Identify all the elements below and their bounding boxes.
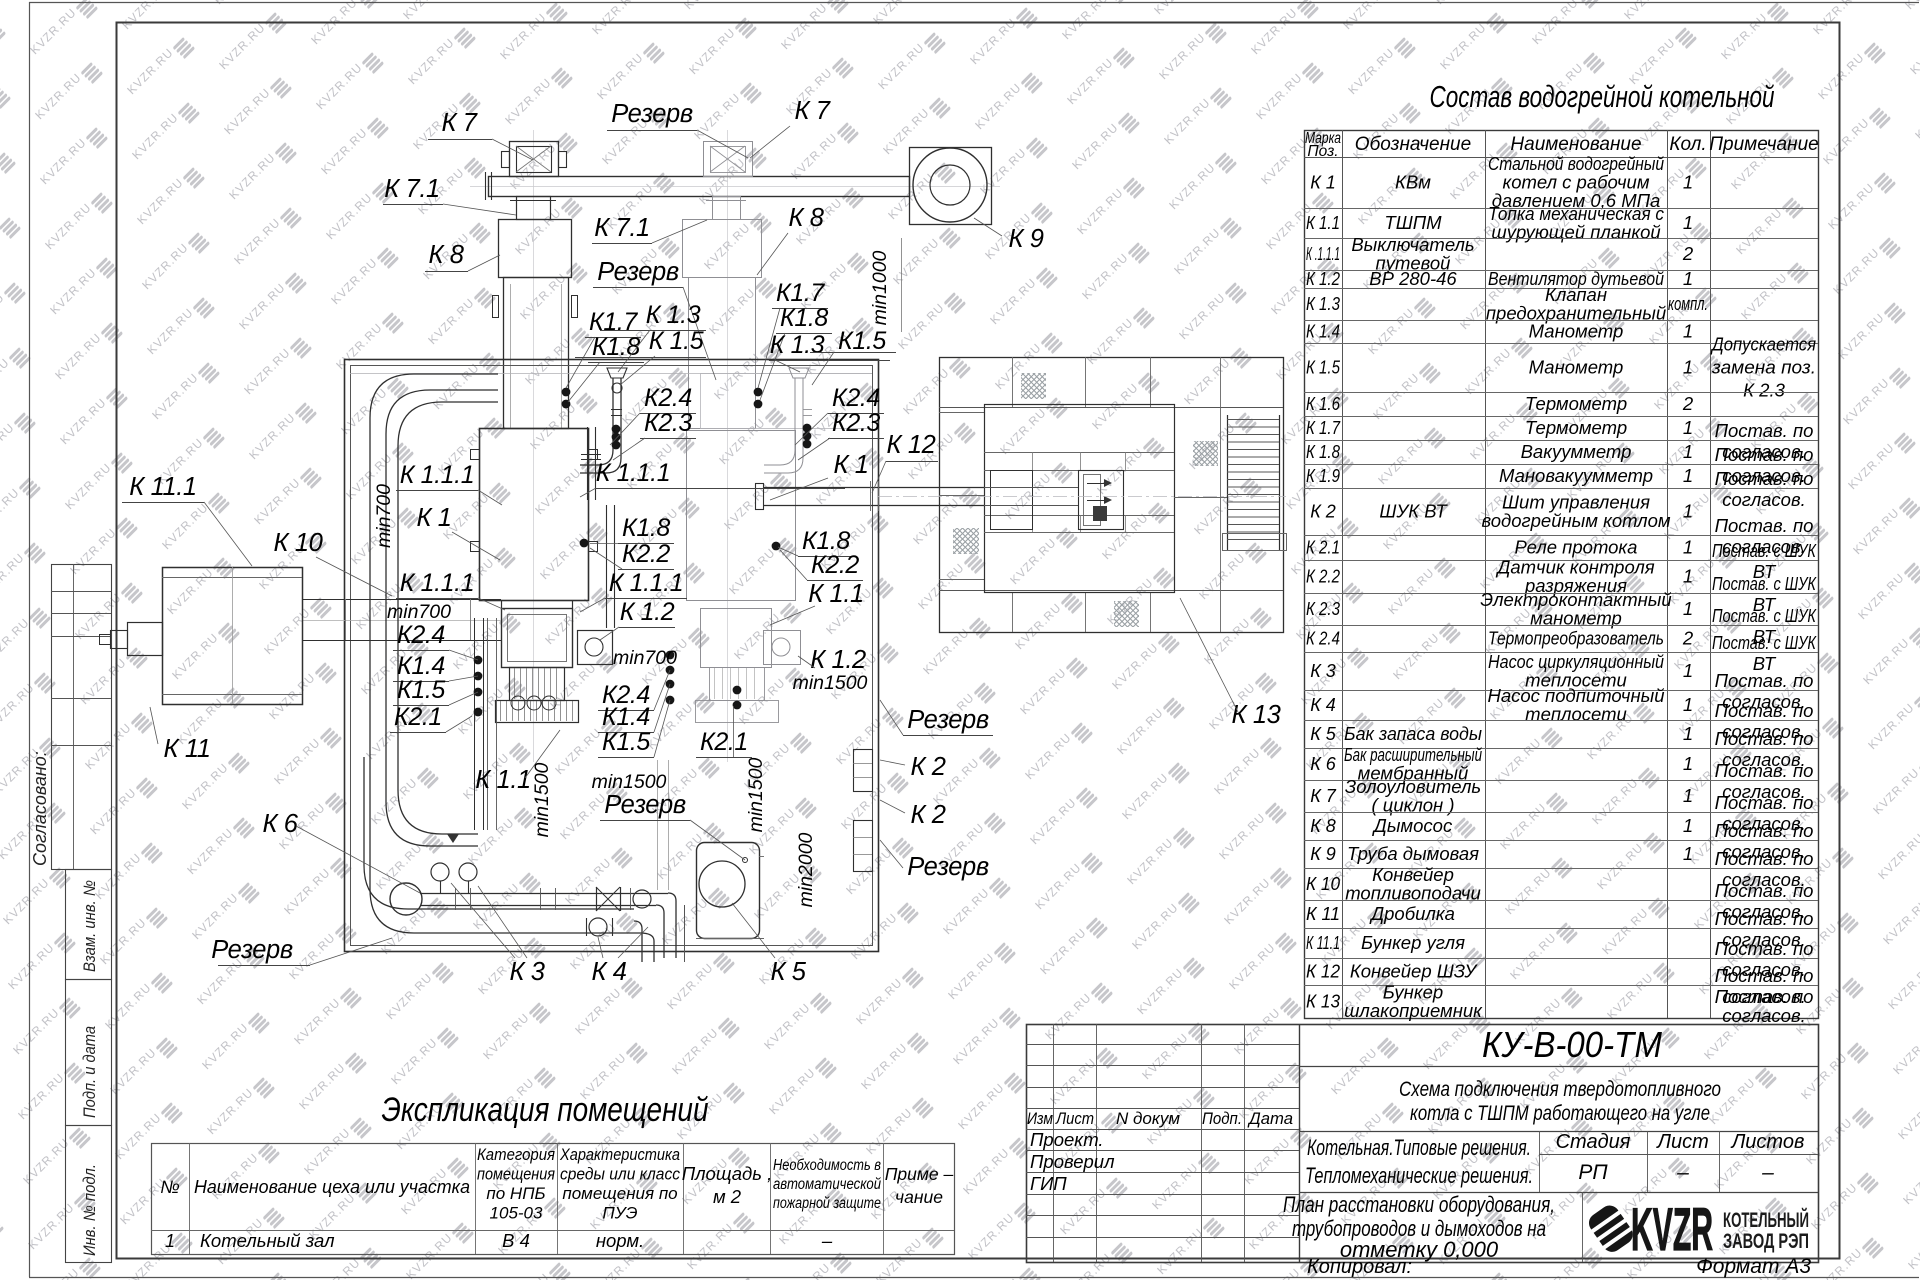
svg-text:Изм: Изм <box>1027 1110 1053 1128</box>
svg-text:Дробилка: Дробилка <box>1369 903 1455 924</box>
svg-text:пожарной защите: пожарной защите <box>773 1195 881 1212</box>
svg-text:К 9: К 9 <box>1008 225 1043 253</box>
svg-text:min1000: min1000 <box>869 250 891 325</box>
svg-text:К 1.2: К 1.2 <box>810 646 866 674</box>
svg-text:Постав. по: Постав. по <box>1715 728 1814 749</box>
svg-text:К 7: К 7 <box>441 109 477 137</box>
svg-text:К 9: К 9 <box>1310 844 1336 864</box>
svg-text:К 1.3: К 1.3 <box>770 331 825 359</box>
svg-text:№: № <box>160 1177 180 1197</box>
svg-text:Вакуумметр: Вакуумметр <box>1521 441 1632 462</box>
svg-text:Состав водогрейной котельной: Состав водогрейной котельной <box>1430 79 1775 114</box>
svg-text:Постав. по: Постав. по <box>1715 515 1814 536</box>
svg-text:Бункер угля: Бункер угля <box>1361 932 1465 953</box>
svg-text:Проект.: Проект. <box>1030 1129 1104 1150</box>
svg-text:помещения: помещения <box>477 1165 555 1184</box>
svg-text:Постав. по: Постав. по <box>1715 760 1814 781</box>
svg-text:К 7: К 7 <box>794 97 830 125</box>
svg-text:К1.8: К1.8 <box>592 333 640 361</box>
svg-text:К 8: К 8 <box>428 241 464 269</box>
svg-text:К 2: К 2 <box>1310 502 1336 522</box>
svg-text:К 2.3: К 2.3 <box>1743 380 1785 401</box>
svg-text:–: – <box>1761 1161 1774 1184</box>
svg-text:1: 1 <box>1683 321 1693 342</box>
svg-text:КВм: КВм <box>1395 172 1431 193</box>
svg-text:Постав. с ШУК: Постав. с ШУК <box>1712 573 1817 594</box>
svg-text:К 1.1.1: К 1.1.1 <box>400 461 474 489</box>
svg-text:К2.4: К2.4 <box>644 384 692 412</box>
svg-text:Постав. по: Постав. по <box>1715 986 1814 1007</box>
svg-text:К 1.2: К 1.2 <box>620 598 675 626</box>
svg-text:Схема подключения твердотоплив: Схема подключения твердотопливного <box>1399 1077 1721 1101</box>
svg-text:Постав. по: Постав. по <box>1715 938 1814 959</box>
svg-text:Постав. по: Постав. по <box>1715 420 1814 441</box>
svg-text:Постав. по: Постав. по <box>1715 444 1814 465</box>
svg-text:–: – <box>821 1230 833 1251</box>
svg-text:min1500: min1500 <box>592 771 667 793</box>
svg-text:К 2.3: К 2.3 <box>1306 599 1340 619</box>
svg-text:KVZR: KVZR <box>1631 1196 1713 1263</box>
svg-text:Труба дымовая: Труба дымовая <box>1347 843 1479 864</box>
svg-text:Постав. по: Постав. по <box>1715 670 1814 691</box>
svg-text:норм.: норм. <box>596 1230 644 1251</box>
svg-text:К 2: К 2 <box>910 753 945 781</box>
svg-text:К 1.6: К 1.6 <box>1306 394 1341 414</box>
svg-text:помещения по: помещения по <box>562 1184 677 1203</box>
svg-text:К 1.1.1: К 1.1.1 <box>400 569 474 597</box>
svg-text:1: 1 <box>1683 212 1693 233</box>
svg-text:Проверил: Проверил <box>1030 1151 1115 1172</box>
svg-text:Листов: Листов <box>1730 1131 1805 1153</box>
svg-text:N докум: N докум <box>1116 1109 1180 1128</box>
svg-text:Термометр: Термометр <box>1525 393 1627 414</box>
svg-text:К 3: К 3 <box>509 958 544 986</box>
svg-text:Экспликация помещений: Экспликация помещений <box>382 1091 709 1129</box>
svg-text:Площадь ,: Площадь , <box>682 1163 773 1184</box>
svg-text:Обозначение: Обозначение <box>1355 134 1471 155</box>
svg-text:Допускается: Допускается <box>1710 334 1816 355</box>
svg-text:1: 1 <box>1683 723 1693 744</box>
svg-text:К 1: К 1 <box>416 504 451 532</box>
svg-text:К2.3: К2.3 <box>832 409 880 437</box>
svg-text:1: 1 <box>1683 172 1693 193</box>
svg-text:К 11: К 11 <box>164 735 211 763</box>
svg-text:К 1.8: К 1.8 <box>1306 442 1340 462</box>
svg-text:min2000: min2000 <box>795 832 817 907</box>
svg-text:2: 2 <box>1682 628 1694 649</box>
svg-text:Постав. по: Постав. по <box>1715 792 1814 813</box>
svg-text:Термометр: Термометр <box>1525 417 1627 438</box>
svg-text:К1.8: К1.8 <box>622 514 670 542</box>
svg-text:К 1.1: К 1.1 <box>475 766 531 794</box>
svg-text:К 8: К 8 <box>1310 816 1336 836</box>
svg-text:Резерв: Резерв <box>611 100 693 128</box>
svg-text:Котельная.Типовые решения.: Котельная.Типовые решения. <box>1307 1135 1531 1160</box>
svg-text:1: 1 <box>1683 566 1693 587</box>
svg-text:К 1: К 1 <box>1310 173 1336 193</box>
svg-text:Постав. по: Постав. по <box>1715 848 1814 869</box>
svg-text:Наименование: Наименование <box>1510 134 1641 155</box>
svg-text:среды или класс: среды или класс <box>560 1165 680 1184</box>
svg-text:шлакоприемник: шлакоприемник <box>1344 1000 1483 1021</box>
svg-text:Наименование цеха или участка: Наименование цеха или участка <box>194 1176 470 1197</box>
svg-text:Котельный зал: Котельный зал <box>200 1230 335 1251</box>
svg-text:К 1.1.1: К 1.1.1 <box>609 569 683 597</box>
svg-text:К 10: К 10 <box>274 529 323 557</box>
svg-text:К 5: К 5 <box>770 958 806 986</box>
svg-text:Стадия: Стадия <box>1556 1131 1631 1153</box>
svg-text:Конвейер ШЗУ: Конвейер ШЗУ <box>1350 961 1478 982</box>
svg-text:водогрейным котлом: водогрейным котлом <box>1481 510 1670 531</box>
svg-text:1: 1 <box>1683 417 1693 438</box>
svg-text:–: – <box>1676 1161 1689 1184</box>
svg-text:К 3: К 3 <box>1310 661 1336 681</box>
svg-text:1: 1 <box>1683 843 1693 864</box>
svg-text:К 7: К 7 <box>1310 786 1337 806</box>
svg-text:К1.7: К1.7 <box>776 279 825 307</box>
svg-text:Примечание: Примечание <box>1709 134 1818 155</box>
svg-text:К2.2: К2.2 <box>811 551 859 579</box>
svg-text:1: 1 <box>1683 441 1693 462</box>
svg-text:Манометр: Манометр <box>1529 321 1624 342</box>
svg-text:Резерв: Резерв <box>597 258 679 286</box>
svg-text:В 4: В 4 <box>502 1230 530 1251</box>
svg-text:1: 1 <box>1683 660 1693 681</box>
svg-text:ВР 280-46: ВР 280-46 <box>1369 268 1457 289</box>
svg-text:1: 1 <box>1683 501 1693 522</box>
svg-text:К 1.1: К 1.1 <box>1306 213 1340 233</box>
svg-text:К1.7: К1.7 <box>589 308 638 336</box>
svg-text:автоматической: автоматической <box>773 1176 881 1193</box>
svg-text:Постав. по: Постав. по <box>1715 468 1814 489</box>
svg-text:min700: min700 <box>387 601 451 623</box>
svg-text:Резерв: Резерв <box>604 791 686 819</box>
svg-text:К2.1: К2.1 <box>394 703 442 731</box>
svg-text:ЗАВОД РЭП: ЗАВОД РЭП <box>1723 1230 1809 1253</box>
svg-text:К 2.1: К 2.1 <box>1306 538 1340 558</box>
svg-text:К 11.1: К 11.1 <box>1306 933 1340 953</box>
svg-text:Термопреобразователь: Термопреобразователь <box>1488 628 1664 649</box>
svg-text:К2.3: К2.3 <box>644 409 692 437</box>
svg-text:К2.2: К2.2 <box>622 540 670 568</box>
svg-text:К1.5: К1.5 <box>602 728 650 756</box>
svg-text:К 4: К 4 <box>1310 695 1336 715</box>
svg-text:шурующей планкой: шурующей планкой <box>1491 221 1660 242</box>
svg-text:К 1.7: К 1.7 <box>1306 418 1341 438</box>
svg-text:котла с ТШПМ работающего на уг: котла с ТШПМ работающего на угле <box>1410 1101 1710 1125</box>
svg-text:К .1.1.1: К .1.1.1 <box>1306 244 1340 264</box>
svg-text:К 1.5: К 1.5 <box>649 327 704 355</box>
svg-text:Постав. по: Постав. по <box>1715 700 1814 721</box>
svg-text:Согласовано:: Согласовано: <box>30 751 50 866</box>
svg-text:К2.4: К2.4 <box>397 621 445 649</box>
svg-text:1: 1 <box>1683 537 1693 558</box>
svg-text:min700: min700 <box>373 484 395 548</box>
svg-text:Резерв: Резерв <box>907 853 989 881</box>
svg-text:КОТЕЛЬНЫЙ: КОТЕЛЬНЫЙ <box>1723 1208 1809 1232</box>
svg-text:Взам. инв. №: Взам. инв. № <box>81 880 99 972</box>
svg-text:Подп.: Подп. <box>1202 1109 1242 1128</box>
svg-text:К 13: К 13 <box>1232 701 1281 729</box>
svg-text:Лист: Лист <box>1055 1110 1094 1128</box>
svg-text:К 6: К 6 <box>262 810 298 838</box>
svg-text:К 4: К 4 <box>591 958 626 986</box>
svg-text:2: 2 <box>1682 393 1694 414</box>
svg-text:Манометр: Манометр <box>1529 357 1624 378</box>
svg-text:Резерв: Резерв <box>907 706 989 734</box>
svg-text:К 1.5: К 1.5 <box>1306 358 1341 378</box>
svg-text:К 1.4: К 1.4 <box>1306 322 1340 342</box>
svg-text:1: 1 <box>1683 268 1693 289</box>
svg-text:м 2: м 2 <box>713 1186 742 1207</box>
svg-text:Необходимость в: Необходимость в <box>773 1157 881 1174</box>
svg-text:ТШПМ: ТШПМ <box>1384 212 1442 233</box>
svg-text:1: 1 <box>1683 357 1693 378</box>
svg-text:1: 1 <box>1683 694 1693 715</box>
svg-text:К 1.9: К 1.9 <box>1306 466 1340 486</box>
svg-text:Реле протока: Реле протока <box>1515 537 1638 558</box>
svg-text:К 2.4: К 2.4 <box>1306 629 1340 649</box>
svg-text:min1500: min1500 <box>531 762 553 837</box>
svg-text:К 11: К 11 <box>1306 904 1340 924</box>
svg-text:min700: min700 <box>613 647 677 669</box>
svg-text:К 2: К 2 <box>910 801 945 829</box>
svg-text:Постав. по: Постав. по <box>1715 908 1814 929</box>
svg-text:1: 1 <box>165 1231 175 1251</box>
svg-text:К 1: К 1 <box>833 451 868 479</box>
svg-text:К 5: К 5 <box>1310 724 1337 744</box>
svg-text:К 1.1.1: К 1.1.1 <box>596 459 670 487</box>
svg-text:Бак запаса воды: Бак запаса воды <box>1344 723 1482 744</box>
svg-text:замена поз.: замена поз. <box>1711 357 1816 378</box>
svg-text:по НПБ: по НПБ <box>486 1184 545 1203</box>
svg-text:Кол.: Кол. <box>1669 134 1706 155</box>
svg-text:1: 1 <box>1683 465 1693 486</box>
svg-text:К 10: К 10 <box>1306 874 1340 894</box>
svg-text:min1500: min1500 <box>793 672 868 694</box>
svg-text:К 6: К 6 <box>1310 754 1337 774</box>
svg-text:1: 1 <box>1683 598 1693 619</box>
svg-text:К 1.2: К 1.2 <box>1306 269 1340 289</box>
svg-text:План расстановки оборудования,: План расстановки оборудования, <box>1283 1192 1555 1217</box>
svg-text:ГИП: ГИП <box>1030 1173 1067 1194</box>
svg-text:К 1.3: К 1.3 <box>1306 294 1340 314</box>
svg-text:К 11.1: К 11.1 <box>129 473 196 501</box>
svg-text:К1.5: К1.5 <box>397 676 445 704</box>
svg-text:Копировал:: Копировал: <box>1307 1256 1412 1278</box>
svg-text:РП: РП <box>1578 1161 1608 1184</box>
svg-text:согласов.: согласов. <box>1722 1005 1806 1026</box>
svg-text:компл.: компл. <box>1668 293 1708 314</box>
svg-text:Категория: Категория <box>477 1145 555 1164</box>
svg-text:Приме –: Приме – <box>885 1164 954 1184</box>
svg-text:1: 1 <box>1683 785 1693 806</box>
svg-text:Постав. по: Постав. по <box>1715 820 1814 841</box>
svg-text:К 12: К 12 <box>1306 962 1340 982</box>
svg-text:Постав. с ШУК: Постав. с ШУК <box>1712 605 1817 626</box>
svg-text:К 7.1: К 7.1 <box>594 214 650 242</box>
svg-text:К2.4: К2.4 <box>832 384 880 412</box>
svg-text:105-03: 105-03 <box>490 1204 543 1223</box>
svg-text:Лист: Лист <box>1655 1131 1709 1153</box>
svg-text:К1.8: К1.8 <box>780 304 828 332</box>
svg-text:К 1.1: К 1.1 <box>808 580 864 608</box>
svg-text:КУ-В-00-ТМ: КУ-В-00-ТМ <box>1482 1024 1662 1065</box>
svg-text:теплосети: теплосети <box>1525 703 1627 724</box>
svg-text:ШУК ВТ: ШУК ВТ <box>1379 501 1448 522</box>
svg-text:согласов.: согласов. <box>1722 489 1806 510</box>
svg-text:Постав. с ШУК: Постав. с ШУК <box>1712 540 1817 561</box>
svg-text:К 1.3: К 1.3 <box>646 301 701 329</box>
svg-text:1: 1 <box>1683 815 1693 836</box>
svg-text:Мановакуумметр: Мановакуумметр <box>1499 465 1653 486</box>
svg-text:Тепломеханические решения.: Тепломеханические решения. <box>1305 1163 1533 1188</box>
svg-text:Постав. по: Постав. по <box>1715 880 1814 901</box>
svg-text:Постав. с ШУК: Постав. с ШУК <box>1712 632 1817 653</box>
svg-text:К 12: К 12 <box>887 431 936 459</box>
svg-text:К1.5: К1.5 <box>838 327 886 355</box>
svg-text:ПУЭ: ПУЭ <box>602 1204 637 1223</box>
svg-text:2: 2 <box>1682 243 1694 264</box>
svg-text:К2.1: К2.1 <box>700 728 748 756</box>
svg-text:min1500: min1500 <box>745 757 767 832</box>
svg-text:К 8: К 8 <box>788 204 824 232</box>
svg-text:К 13: К 13 <box>1306 992 1340 1012</box>
svg-text:Подп. и дата: Подп. и дата <box>81 1026 99 1118</box>
svg-text:Резерв: Резерв <box>211 936 293 964</box>
svg-text:К 2.2: К 2.2 <box>1306 567 1340 587</box>
svg-text:Постав. по: Постав. по <box>1715 965 1814 986</box>
svg-text:чание: чание <box>895 1187 943 1207</box>
svg-text:Поз.: Поз. <box>1307 143 1338 160</box>
svg-text:Дымосос: Дымосос <box>1372 815 1453 836</box>
svg-text:Характеристика: Характеристика <box>559 1145 680 1164</box>
svg-text:К 7.1: К 7.1 <box>384 175 440 203</box>
svg-text:К1.4: К1.4 <box>602 703 650 731</box>
svg-text:Дата: Дата <box>1247 1109 1293 1128</box>
svg-text:Инв. № подл.: Инв. № подл. <box>81 1164 99 1256</box>
svg-text:Формат А3: Формат А3 <box>1696 1255 1811 1278</box>
svg-text:1: 1 <box>1683 753 1693 774</box>
